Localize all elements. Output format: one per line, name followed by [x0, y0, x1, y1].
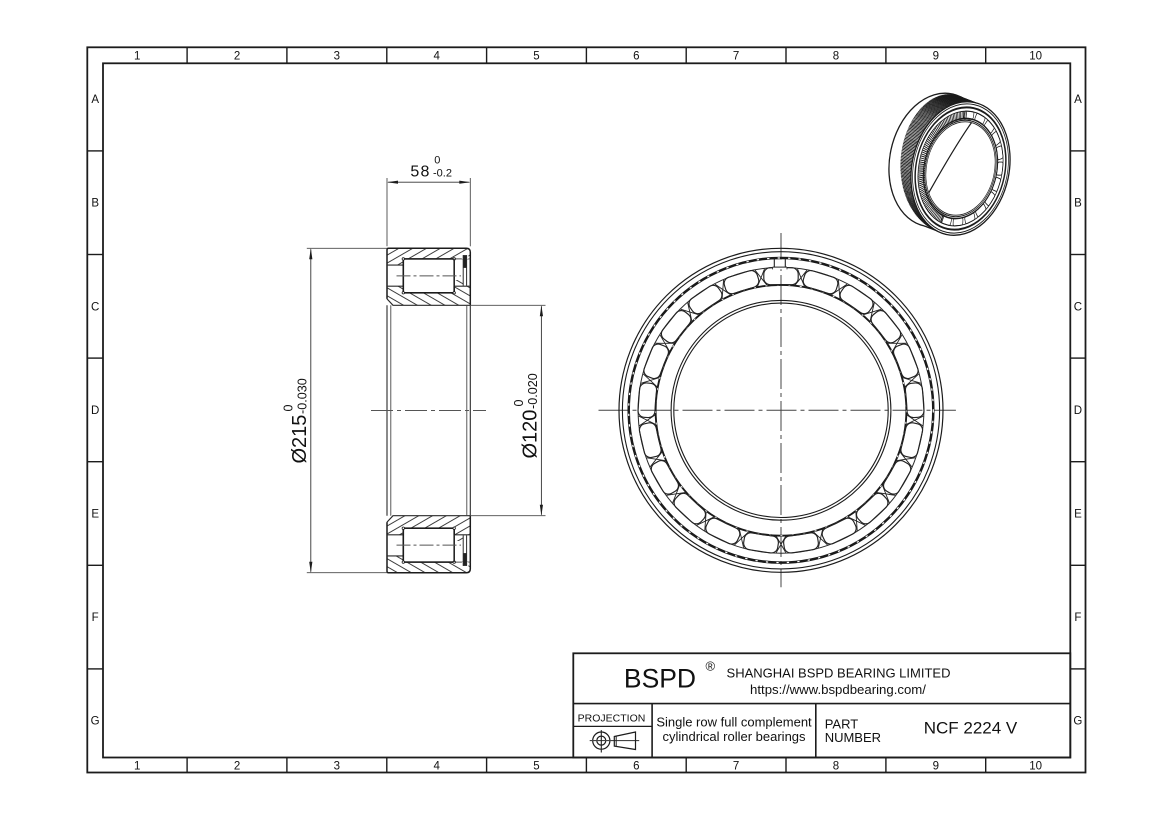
- svg-text:D: D: [1074, 405, 1082, 417]
- svg-text:58: 58: [410, 164, 430, 181]
- svg-text:cylindrical roller bearings: cylindrical roller bearings: [662, 729, 806, 744]
- svg-text:PROJECTION: PROJECTION: [578, 713, 646, 725]
- svg-text:BSPD: BSPD: [624, 664, 696, 694]
- svg-text:Single row full complement: Single row full complement: [656, 715, 812, 730]
- svg-text:A: A: [91, 94, 99, 106]
- svg-text:G: G: [91, 716, 100, 728]
- svg-text:E: E: [1074, 509, 1082, 521]
- svg-text:Ø120: Ø120: [520, 410, 542, 459]
- svg-text:7: 7: [733, 51, 739, 63]
- svg-text:5: 5: [533, 761, 539, 773]
- svg-text:E: E: [91, 509, 99, 521]
- svg-text:2: 2: [234, 761, 240, 773]
- svg-text:-0.030: -0.030: [296, 378, 310, 414]
- svg-text:6: 6: [633, 51, 639, 63]
- svg-text:1: 1: [134, 761, 140, 773]
- svg-text:B: B: [1074, 198, 1082, 210]
- svg-text:0: 0: [282, 404, 296, 411]
- svg-text:-0.020: -0.020: [526, 373, 540, 409]
- svg-text:5: 5: [533, 51, 539, 63]
- svg-text:SHANGHAI BSPD BEARING LIMITED: SHANGHAI BSPD BEARING LIMITED: [727, 666, 951, 681]
- svg-text:9: 9: [933, 761, 939, 773]
- svg-text:NUMBER: NUMBER: [825, 730, 881, 745]
- svg-text:1: 1: [134, 51, 140, 63]
- svg-text:F: F: [1074, 612, 1081, 624]
- svg-text:D: D: [91, 405, 99, 417]
- svg-text:-0.2: -0.2: [433, 168, 452, 180]
- svg-text:4: 4: [433, 51, 440, 63]
- svg-text:10: 10: [1029, 51, 1042, 63]
- svg-text:®: ®: [706, 659, 716, 674]
- svg-text:9: 9: [933, 51, 939, 63]
- svg-text:https://www.bspdbearing.com/: https://www.bspdbearing.com/: [750, 682, 926, 697]
- svg-text:4: 4: [433, 761, 440, 773]
- svg-text:F: F: [92, 612, 99, 624]
- svg-text:2: 2: [234, 51, 240, 63]
- svg-text:0: 0: [434, 154, 440, 166]
- svg-text:C: C: [1074, 301, 1082, 313]
- svg-text:NCF 2224 V: NCF 2224 V: [924, 719, 1018, 738]
- svg-text:C: C: [91, 301, 99, 313]
- svg-text:8: 8: [833, 51, 839, 63]
- svg-text:8: 8: [833, 761, 839, 773]
- svg-text:0: 0: [512, 399, 526, 406]
- svg-text:6: 6: [633, 761, 639, 773]
- svg-text:10: 10: [1029, 761, 1042, 773]
- svg-text:7: 7: [733, 761, 739, 773]
- svg-text:3: 3: [334, 51, 340, 63]
- svg-text:B: B: [91, 198, 99, 210]
- svg-text:A: A: [1074, 94, 1082, 106]
- svg-text:Ø215: Ø215: [289, 415, 311, 464]
- svg-text:G: G: [1073, 716, 1082, 728]
- svg-text:3: 3: [334, 761, 340, 773]
